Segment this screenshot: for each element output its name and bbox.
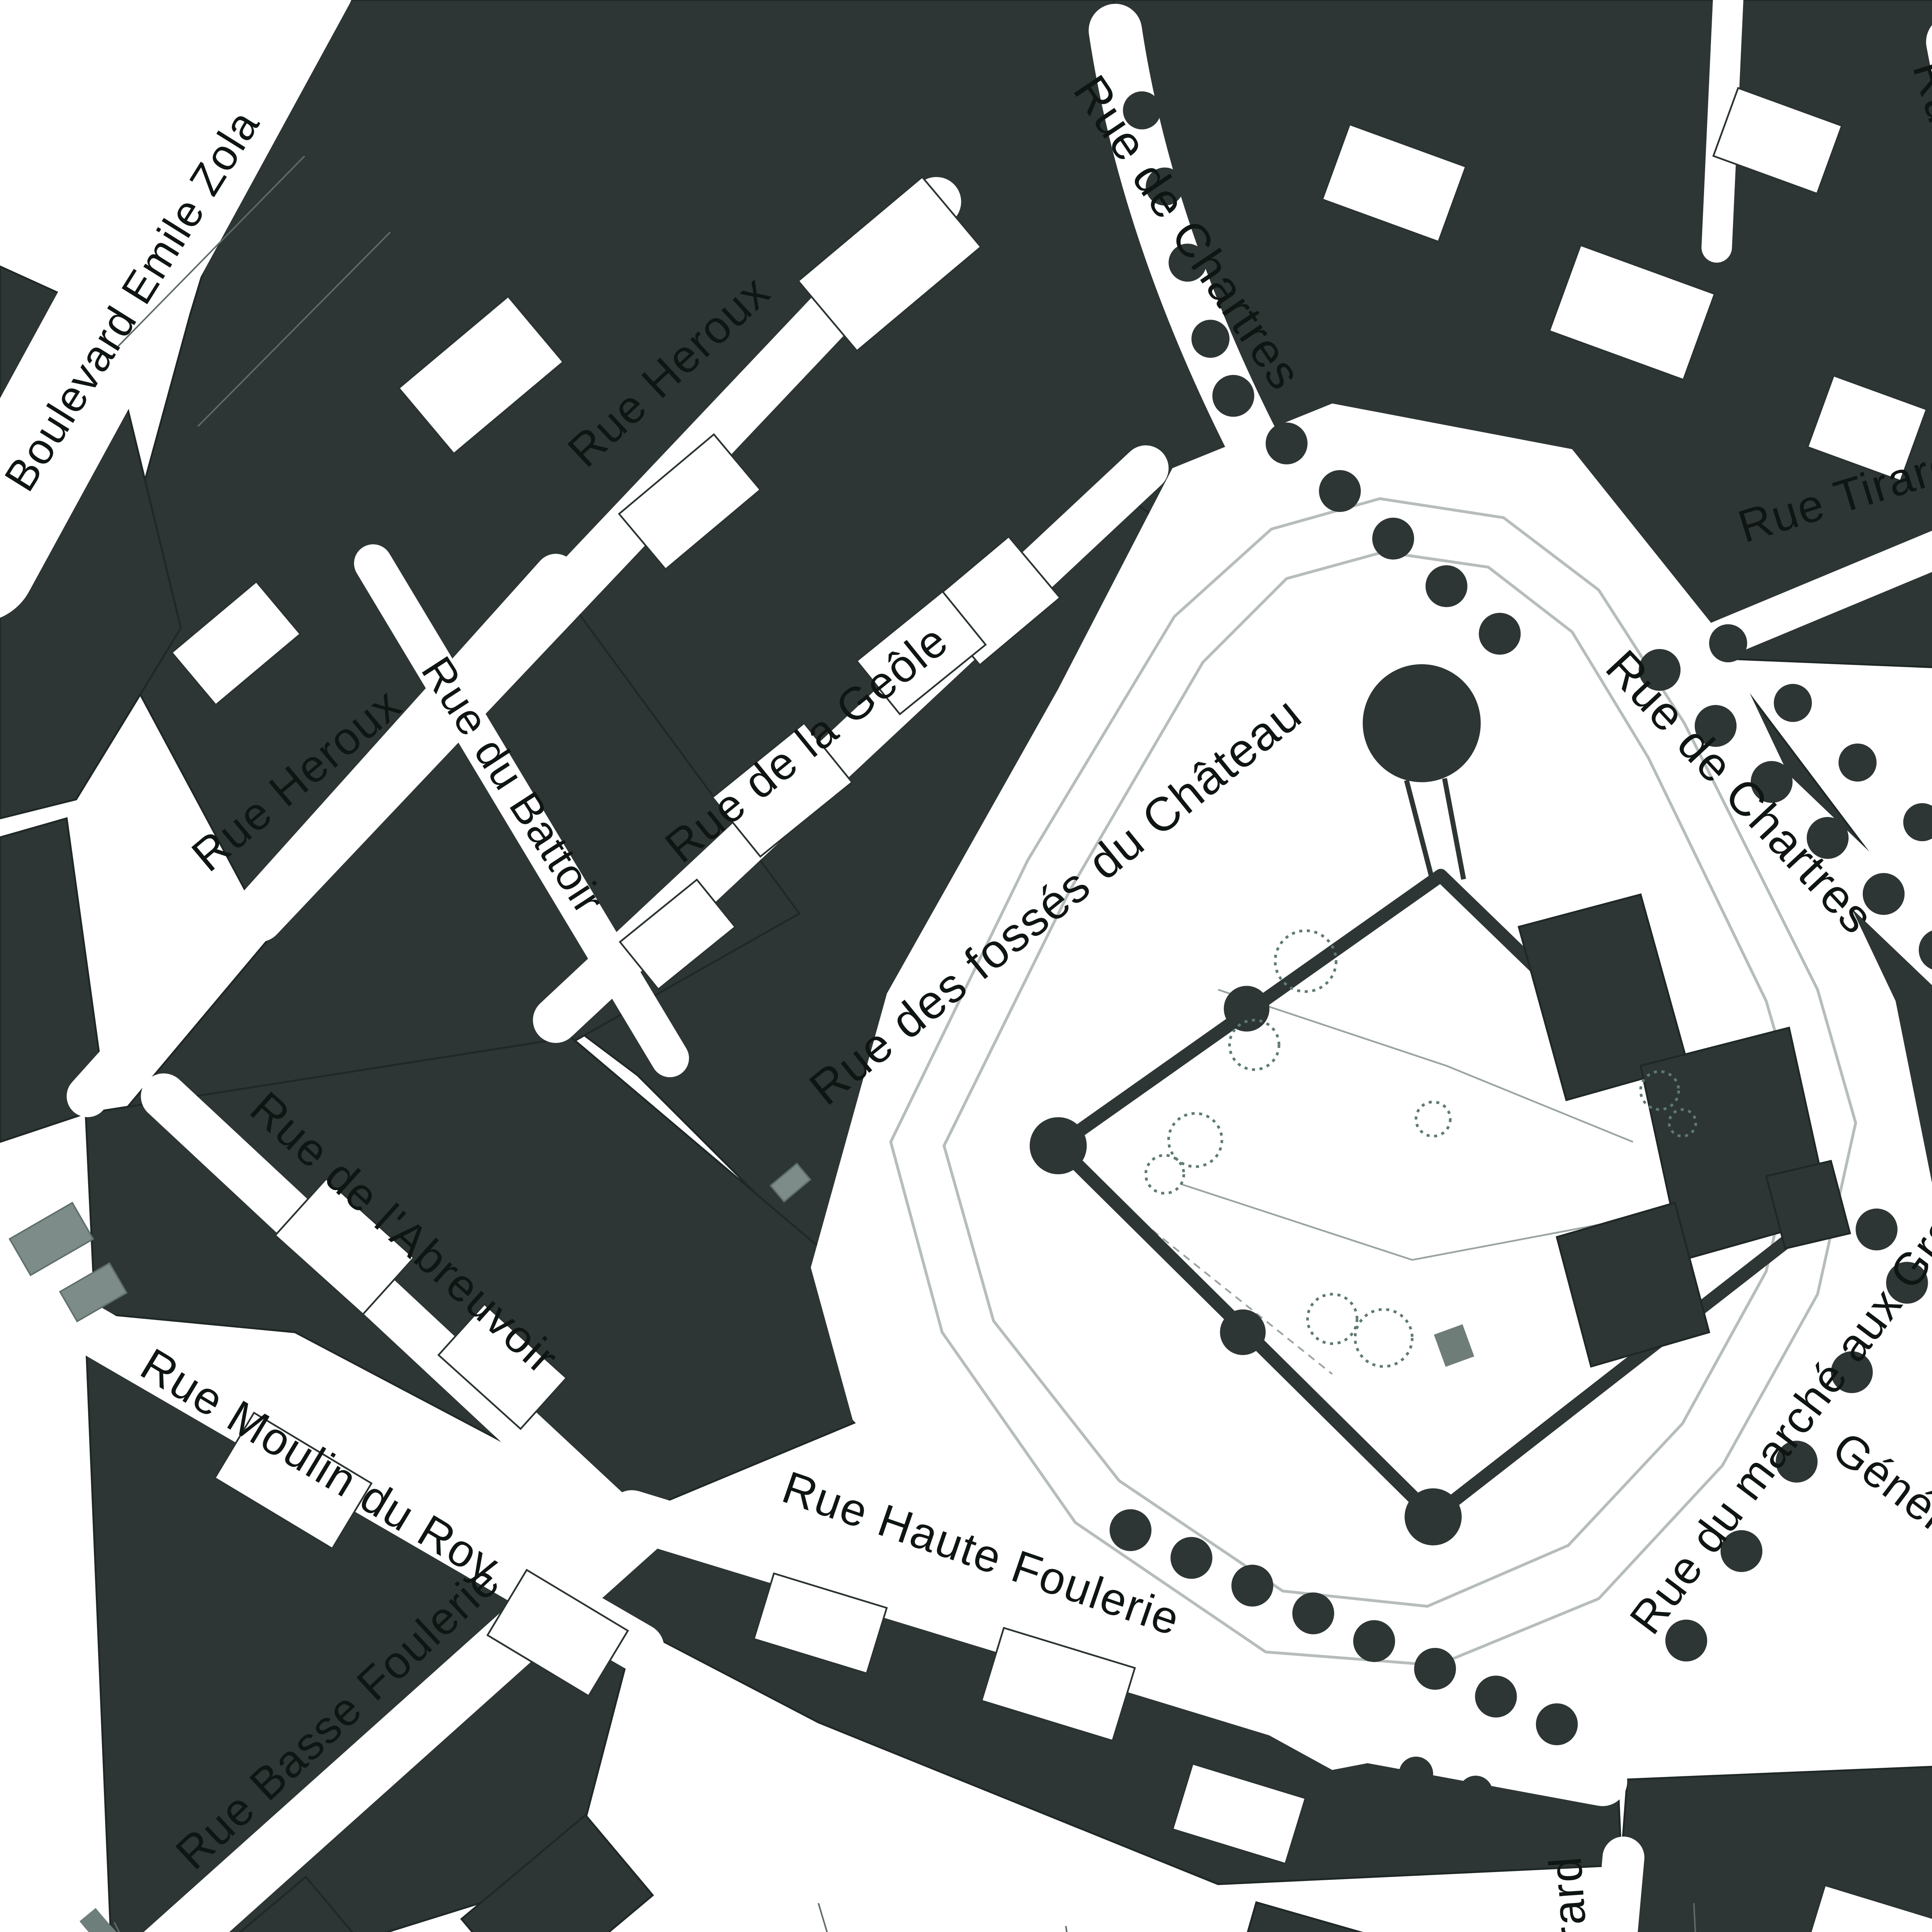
castle-mid-tower: [1220, 1310, 1265, 1355]
street-tree-dot: [1578, 1814, 1612, 1848]
castle-corner-tower: [1030, 1117, 1087, 1174]
street-tree-dot: [1479, 613, 1520, 655]
street-tree-dot: [1709, 624, 1747, 663]
street-tree-dot: [1399, 1757, 1433, 1791]
street-tree-dot: [1518, 1795, 1553, 1829]
street-tree-dot: [1110, 1509, 1151, 1551]
street-tree-dot: [1414, 1648, 1456, 1690]
street-tree-dot: [1459, 1776, 1493, 1810]
castle-north-tower: [1363, 664, 1481, 782]
street-tree-dot: [1213, 375, 1254, 417]
street-tree-dot: [1903, 803, 1932, 842]
street-tree-dot: [1774, 684, 1812, 722]
street-tree-dot: [1231, 1565, 1273, 1606]
map-canvas: Boulevard Emile ZolaRue HerouxRue de Cha…: [0, 0, 1932, 1932]
street-tree-dot: [1838, 743, 1877, 782]
parcel-line: [818, 1903, 990, 1932]
street-tree-dot: [1425, 565, 1467, 607]
street-tree-dot: [1353, 1620, 1395, 1662]
street-tree-dot: [1292, 1592, 1334, 1634]
street-tree-dot: [1536, 1703, 1578, 1745]
street-tree-dot: [1319, 470, 1361, 512]
street-tree-dot: [1855, 1209, 1897, 1250]
street-tree-dot: [1475, 1676, 1517, 1718]
figure-ground-map: Boulevard Emile ZolaRue HerouxRue de Cha…: [0, 0, 1932, 1932]
street-tree-dot: [1170, 1537, 1212, 1579]
street-tree-dot: [1372, 518, 1414, 560]
building-block: [1115, 1902, 1531, 1932]
parcel-line: [1066, 1926, 1153, 1932]
castle-mid-tower: [1224, 986, 1269, 1031]
castle-corner-tower: [1405, 1488, 1462, 1546]
mill-building: [10, 1203, 93, 1275]
street-tree-dot: [1266, 422, 1308, 464]
